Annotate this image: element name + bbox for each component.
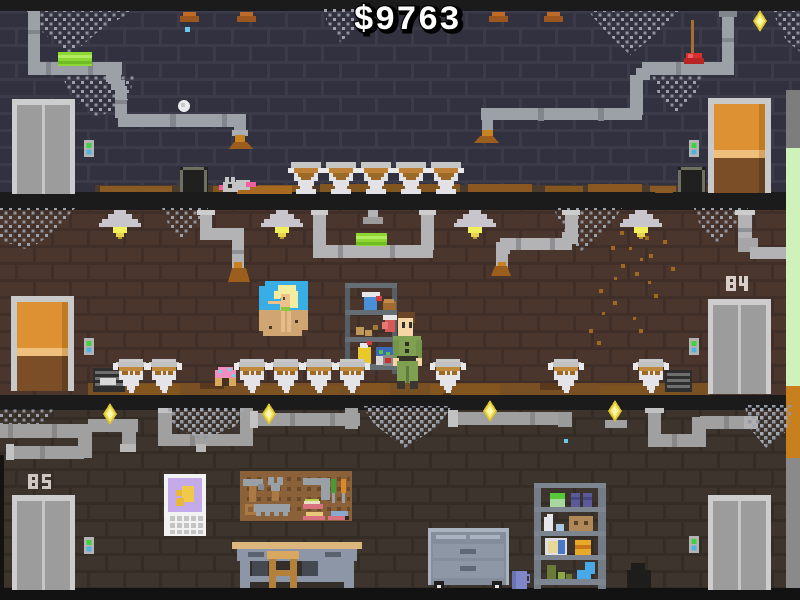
svg-text:$9763: $9763 bbox=[353, 2, 460, 40]
